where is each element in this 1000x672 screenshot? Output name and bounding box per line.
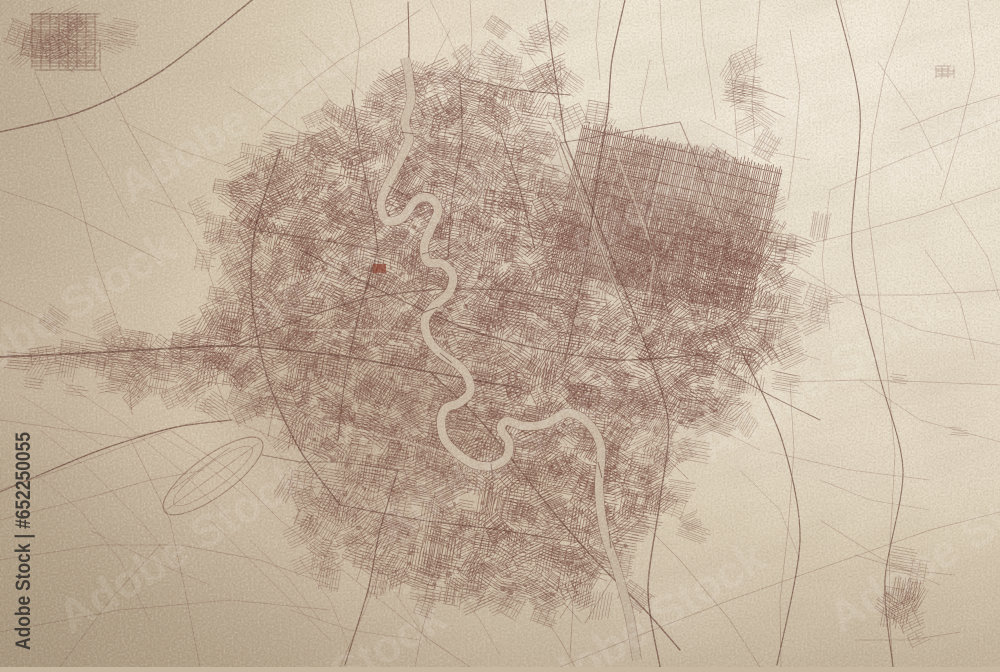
svg-text:Adobe Stock | #652250055: Adobe Stock | #652250055 [12,432,35,650]
